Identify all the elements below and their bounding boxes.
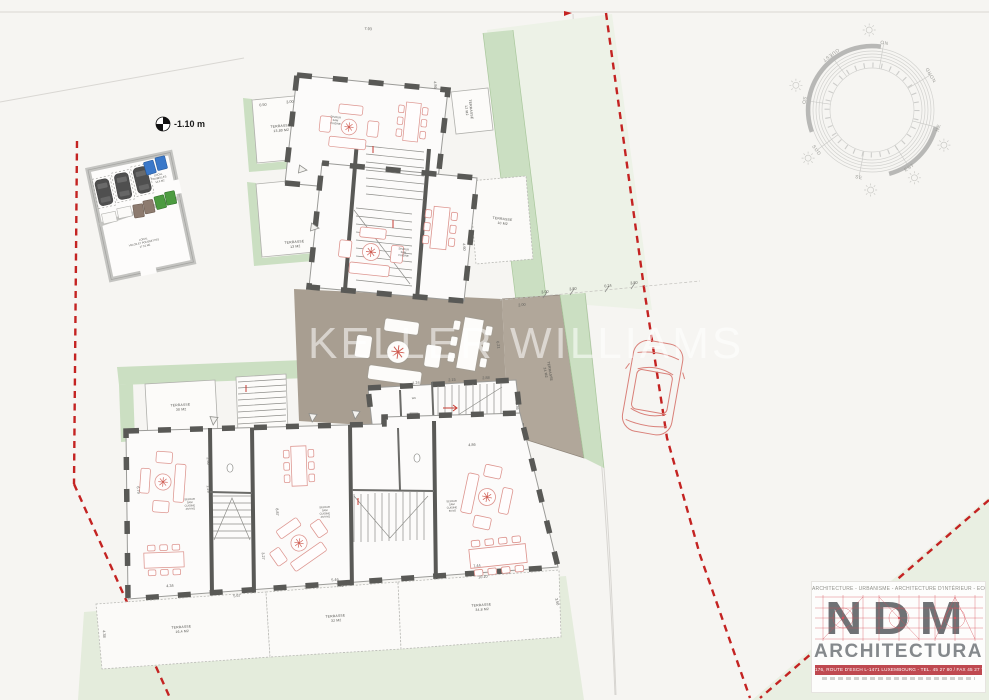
dim-label: 2.88 bbox=[482, 376, 490, 380]
dim-label: 2.15 bbox=[448, 378, 456, 382]
unit1-label: SEJOUR SAM CUISINE 49,9 M2 bbox=[184, 497, 196, 511]
unit-b-dining bbox=[422, 205, 458, 250]
street-car-outline bbox=[615, 337, 690, 438]
dim-label: 3.00 bbox=[541, 290, 549, 295]
toilet bbox=[414, 454, 420, 462]
dim-label: 3.80 bbox=[569, 287, 577, 292]
unit2-label: SEJOUR SAM CUISINE 49,9 M2 bbox=[319, 505, 331, 519]
dim-label: 3.00 bbox=[286, 100, 294, 105]
unit2-dining bbox=[283, 446, 315, 487]
dim-label: 8.87 bbox=[275, 508, 279, 516]
compass-label-se: SE bbox=[854, 174, 863, 181]
annex-building: LOCAL POUBELLES 14,9 M2 LOCAL VELOS ET P… bbox=[88, 153, 193, 280]
dim-label: 1.29 bbox=[206, 485, 210, 493]
dim-label: 2.00 bbox=[518, 303, 526, 308]
dim-label: 6.79 bbox=[136, 486, 140, 494]
logo-fineprint bbox=[822, 677, 974, 680]
compass-label-so: SO bbox=[800, 96, 807, 105]
logo-subname: ARCHITECTURA bbox=[812, 641, 985, 663]
dim-label: 0.24 bbox=[604, 284, 612, 289]
dim-label: 1.24 bbox=[412, 381, 420, 385]
toilet bbox=[227, 464, 233, 472]
sun-arc-west bbox=[808, 46, 881, 132]
sun-icon bbox=[863, 24, 876, 37]
sun-icon bbox=[789, 79, 802, 92]
sun-icon bbox=[802, 152, 815, 165]
dim-label: 7.25 bbox=[336, 584, 344, 589]
dim-label: 3.27 bbox=[261, 552, 265, 560]
dim-label: 3.80 bbox=[630, 281, 638, 286]
dim-label: 4.86 bbox=[468, 443, 476, 448]
dim-label: 4.86 bbox=[433, 81, 438, 89]
dim-label: 10.10 bbox=[478, 575, 488, 580]
dim-label: 4.38 bbox=[102, 630, 107, 638]
sun-icon bbox=[864, 184, 877, 197]
plan-sheet: { "meta": { "watermark": "KELLER WILLIAM… bbox=[0, 0, 989, 700]
dim-label: 7.93 bbox=[364, 27, 372, 32]
unit1-dining bbox=[144, 544, 185, 576]
compass: NORD NE EST SE SUD SO OUEST NO bbox=[789, 24, 950, 197]
dim-label: 0.50 bbox=[259, 103, 267, 108]
dim-label: 5.67 bbox=[233, 594, 241, 599]
compass-label-sud: SUD bbox=[810, 144, 822, 157]
dim-label: 7.44 bbox=[473, 564, 481, 569]
dim-label: 2.36 bbox=[515, 402, 520, 410]
dim-label: 2.50 bbox=[206, 457, 210, 465]
hour-ticks bbox=[827, 65, 917, 155]
dim-label: 4.60 bbox=[462, 243, 467, 251]
level-marker: -1.10 m bbox=[156, 117, 205, 131]
dim-label: 5.46 bbox=[331, 578, 339, 583]
dim-label: 4.34 bbox=[166, 584, 174, 589]
wc-label: WC bbox=[412, 396, 417, 400]
unit-a-dining bbox=[395, 101, 428, 143]
compass-label-ne: NE bbox=[935, 123, 943, 132]
logo-name: NDM bbox=[825, 593, 973, 643]
sun-icon bbox=[937, 139, 950, 152]
logo-address-bar: 176, ROUTE D'ESCH L-1471 LUXEMBOURG - TE… bbox=[815, 665, 982, 675]
level-value: -1.10 m bbox=[174, 119, 205, 129]
ndm-logo-block: ARCHITECTURE - URBANISME - ARCHITECTURE … bbox=[811, 581, 986, 693]
sun-icon bbox=[908, 171, 921, 184]
